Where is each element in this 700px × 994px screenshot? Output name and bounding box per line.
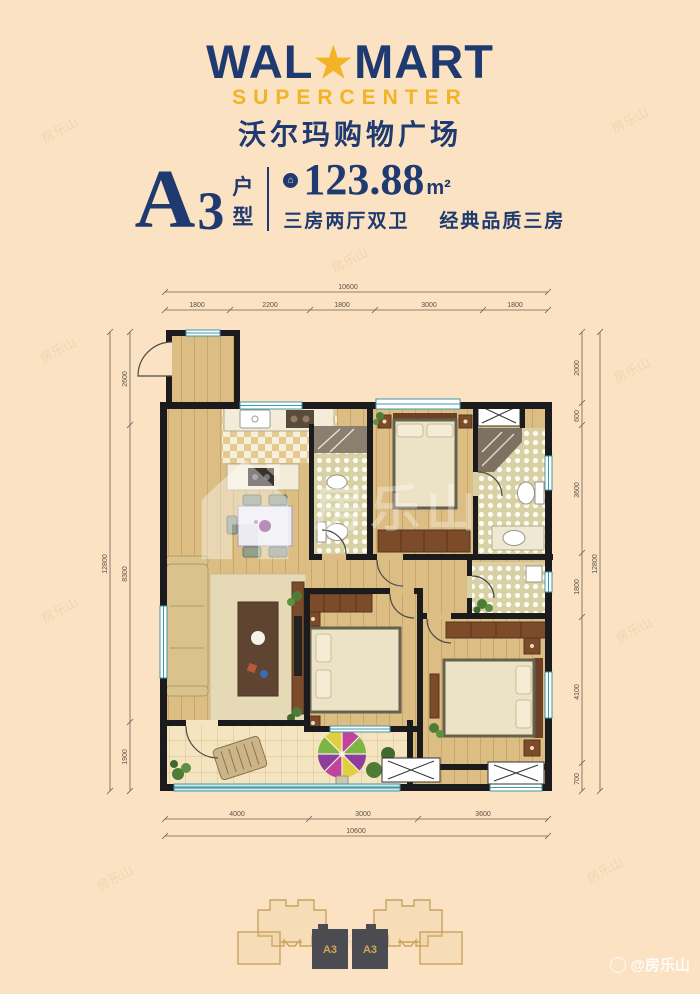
keyplan-unit-label: A3 bbox=[323, 944, 337, 956]
bottom-right-window bbox=[490, 784, 542, 791]
house-badge-icon: ⌂ bbox=[283, 173, 298, 188]
dim-label: 10600 bbox=[346, 828, 366, 835]
dim-label: 12800 bbox=[592, 554, 599, 574]
poster-page: 房乐山 房乐山 房乐山 房乐山 房乐山 房乐山 房乐山 房乐山 房乐山 房乐山 … bbox=[0, 0, 700, 994]
balcony-glass bbox=[174, 784, 400, 791]
credit-logo-icon bbox=[610, 957, 626, 973]
dim-label: 1900 bbox=[122, 749, 129, 765]
entry-hall-floor bbox=[169, 334, 237, 408]
bath-2-window bbox=[545, 456, 552, 490]
watermark-tile: 房乐山 bbox=[328, 242, 371, 277]
kitchen-window bbox=[240, 402, 302, 409]
dim-label: 4000 bbox=[229, 811, 245, 818]
highlighted-units: A3 A3 bbox=[312, 924, 388, 969]
dim-label: 1800 bbox=[334, 302, 350, 309]
unit-type-label: 户 型 bbox=[232, 171, 253, 231]
living-window bbox=[160, 606, 167, 678]
watermark-tile: 房乐山 bbox=[612, 612, 655, 647]
dim-label: 3000 bbox=[355, 811, 371, 818]
parasol-icon bbox=[318, 730, 366, 778]
tower-outlines bbox=[238, 900, 462, 964]
dim-label: 3000 bbox=[421, 302, 437, 309]
logo-subtitle: SUPERCENTER bbox=[0, 86, 700, 110]
tagline: 三房两厅双卫 经典品质三房 bbox=[283, 206, 565, 233]
master-bay-window bbox=[376, 399, 460, 409]
dim-label: 700 bbox=[574, 773, 581, 785]
dim-label: 600 bbox=[574, 410, 581, 422]
watermark-tile: 房乐山 bbox=[38, 592, 81, 627]
unit-title: A 3 户 型 ⌂ 123.88 m² 三房两厅双卫 经典品质三房 bbox=[0, 160, 700, 233]
bath-3-window bbox=[545, 572, 552, 592]
dim-label: 2200 bbox=[262, 302, 278, 309]
dim-label: 10600 bbox=[338, 284, 358, 291]
dim-label: 1800 bbox=[507, 302, 523, 309]
building-key-plan: A3 A3 bbox=[228, 890, 472, 988]
logo-wordmark: WAL★MART bbox=[0, 38, 700, 85]
watermark-tile: 房乐山 bbox=[610, 352, 653, 387]
floor-plan: 10600 1800 2200 1800 3000 1800 4000 3000… bbox=[90, 276, 610, 852]
dim-label: 8300 bbox=[122, 566, 129, 582]
star-icon: ★ bbox=[315, 39, 354, 86]
dim-label: 3600 bbox=[574, 482, 581, 498]
bedroom-3-window bbox=[545, 672, 552, 718]
bedroom-2-window bbox=[330, 726, 390, 732]
tagline-right: 经典品质三房 bbox=[439, 206, 565, 233]
credit-watermark: @房乐山 bbox=[610, 954, 690, 975]
area-line: ⌂ 123.88 m² bbox=[283, 160, 565, 200]
dim-label: 3600 bbox=[475, 811, 491, 818]
type-char-xing: 型 bbox=[232, 201, 253, 231]
coffee-table bbox=[238, 602, 278, 696]
walmart-logo: WAL★MART SUPERCENTER 沃尔玛购物广场 bbox=[0, 38, 700, 153]
type-char-hu: 户 bbox=[232, 171, 253, 201]
keyplan-unit-label: A3 bbox=[363, 944, 377, 956]
entry-window bbox=[186, 330, 220, 336]
dim-label: 1800 bbox=[574, 579, 581, 595]
logo-chinese-name: 沃尔玛购物广场 bbox=[0, 113, 700, 153]
watermark-tile: 房乐山 bbox=[583, 852, 626, 887]
dim-label: 1800 bbox=[189, 302, 205, 309]
area-value: 123.88 bbox=[303, 160, 424, 200]
dim-label: 2600 bbox=[122, 371, 129, 387]
tagline-left: 三房两厅双卫 bbox=[283, 206, 409, 233]
area-unit: m² bbox=[426, 177, 450, 200]
dim-label: 4100 bbox=[574, 684, 581, 700]
unit-number: 3 bbox=[197, 190, 224, 233]
credit-text: @房乐山 bbox=[630, 954, 690, 975]
dim-label: 2000 bbox=[574, 360, 581, 376]
unit-letter: A bbox=[135, 167, 196, 233]
dim-label: 12800 bbox=[102, 554, 109, 574]
watermark-tile: 房乐山 bbox=[36, 332, 79, 367]
sofa bbox=[166, 564, 208, 690]
watermark-tile: 房乐山 bbox=[93, 860, 136, 895]
title-divider bbox=[267, 167, 269, 231]
